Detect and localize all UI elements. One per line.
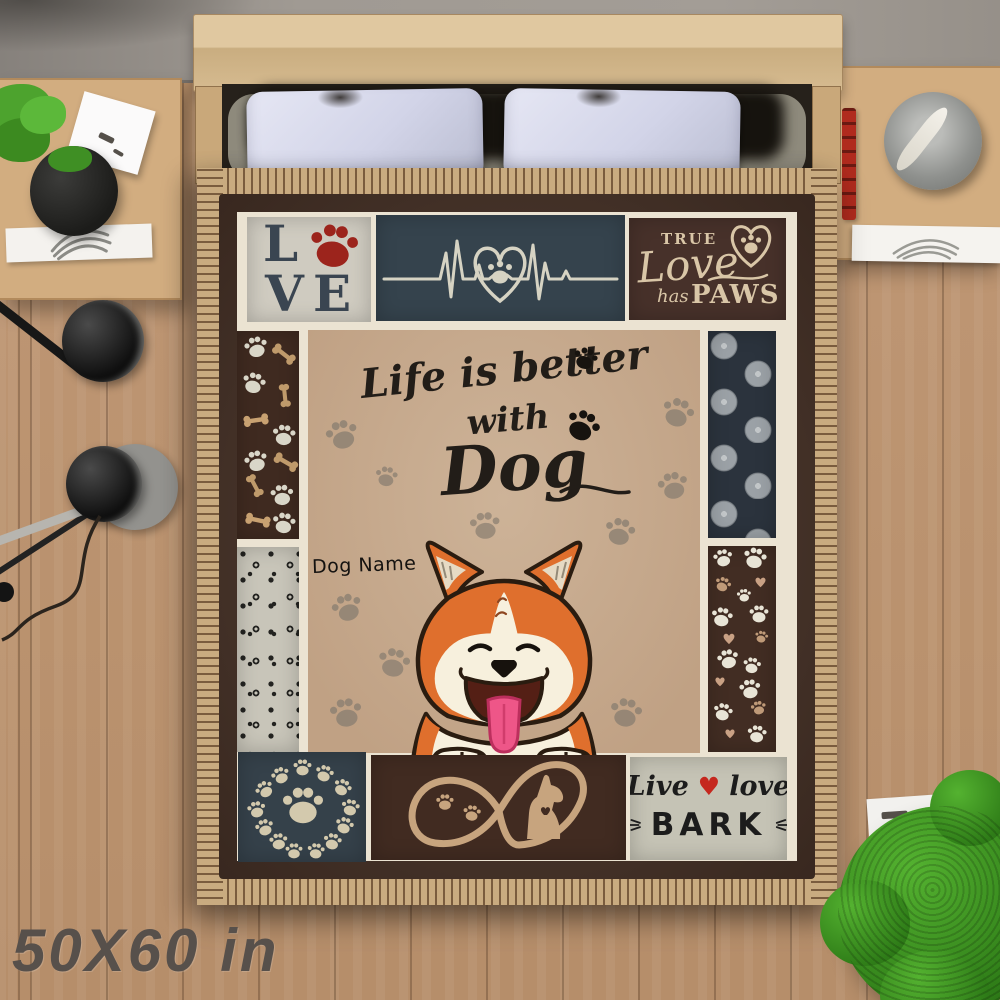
- panel-tennis-balls: [708, 331, 776, 538]
- plant-leaves: [20, 96, 66, 134]
- paw-icon: [270, 422, 298, 448]
- headboard: [193, 14, 843, 92]
- bark-line-2: BARK: [630, 807, 787, 843]
- infinity-dog-icon: [371, 755, 626, 860]
- love-letter-v: V: [265, 269, 304, 319]
- bone-icon: [238, 411, 274, 430]
- paw-icon: [241, 446, 272, 475]
- paw-icon: [239, 368, 270, 397]
- heartbeat-ekg-icon: [376, 215, 625, 321]
- bone-icon: [266, 338, 299, 370]
- paw-icon: [320, 414, 363, 454]
- bone-icon: [268, 447, 299, 476]
- heart-icon: [722, 632, 736, 645]
- love-word: love: [729, 771, 787, 802]
- panel-true-love: TRUE Love has PAWS: [629, 218, 786, 320]
- paws-word: PAWS: [691, 280, 780, 310]
- bowl: [884, 92, 982, 190]
- panel-dots: [237, 547, 299, 752]
- bark-word: BARK: [651, 807, 767, 843]
- paw-icon: [467, 509, 503, 542]
- bone-icon: [277, 379, 293, 412]
- paw-icon: [436, 794, 481, 821]
- paw-icon: [326, 587, 368, 626]
- paw-icon: [753, 629, 770, 645]
- blanket: L V E TRUE Love: [197, 168, 837, 905]
- panel-center-quote: Life is better with Dog Dog Name: [308, 330, 700, 753]
- paw-icon: [268, 482, 296, 507]
- lamp-head-upper: [62, 300, 144, 382]
- lamp-cord: [0, 470, 170, 680]
- bedroom-scene: L V E TRUE Love: [0, 0, 1000, 1000]
- squiggle-marks: [888, 227, 965, 260]
- red-object: [842, 108, 856, 220]
- panel-live-love-bark: Live ♥ love BARK: [630, 757, 787, 860]
- panel-paws-hearts: [708, 546, 776, 752]
- spoon: [892, 103, 953, 174]
- love-letter-e: E: [313, 269, 351, 319]
- paw-icon: [714, 646, 742, 672]
- paw-icon: [656, 391, 700, 433]
- panel-love: L V E: [247, 217, 371, 322]
- panel-infinity-dog: [371, 755, 626, 860]
- paw-icon: [373, 463, 401, 488]
- paper: [852, 225, 1000, 264]
- bark-line-1: Live ♥ love: [630, 771, 787, 802]
- love-letter-l: L: [263, 219, 298, 269]
- paw-icon: [735, 587, 752, 602]
- panel-heart-of-paws: [238, 752, 366, 862]
- panel-bones-paws: [237, 331, 299, 539]
- paw-icon: [737, 677, 763, 700]
- sitting-dog-silhouette: [527, 775, 563, 839]
- plant-leaves: [48, 146, 92, 172]
- paw-icon: [305, 841, 327, 860]
- heart-icon: ♥: [698, 772, 720, 801]
- panel-heartbeat: [376, 215, 625, 321]
- heart-icon: [714, 676, 726, 687]
- paw-icon: [745, 723, 769, 744]
- dash-marks-icon: [774, 814, 787, 836]
- has-word: has: [657, 286, 689, 307]
- paw-icon: [749, 699, 768, 717]
- size-label: 50X60 in: [12, 916, 280, 985]
- heart-icon: [724, 728, 736, 739]
- paw-icon: [741, 655, 763, 676]
- paw-icon: [284, 842, 304, 859]
- paw-icon: [270, 509, 299, 535]
- quote-line-1: Life is better: [330, 328, 677, 411]
- paw-icon: [748, 604, 770, 623]
- paw-icon: [292, 758, 313, 776]
- paw-icon: [710, 700, 735, 723]
- bone-icon: [242, 468, 269, 502]
- live-word: Live: [630, 771, 689, 802]
- heart-icon: [754, 576, 767, 588]
- paw-icon: [711, 546, 736, 569]
- dash-marks-icon: [630, 814, 643, 836]
- paw-icon: [708, 604, 735, 629]
- paw-icon: [326, 694, 366, 731]
- paw-icon: [712, 573, 734, 594]
- paw-icon: [280, 784, 326, 825]
- paw-icon: [740, 546, 770, 571]
- paw-icon: [653, 467, 692, 503]
